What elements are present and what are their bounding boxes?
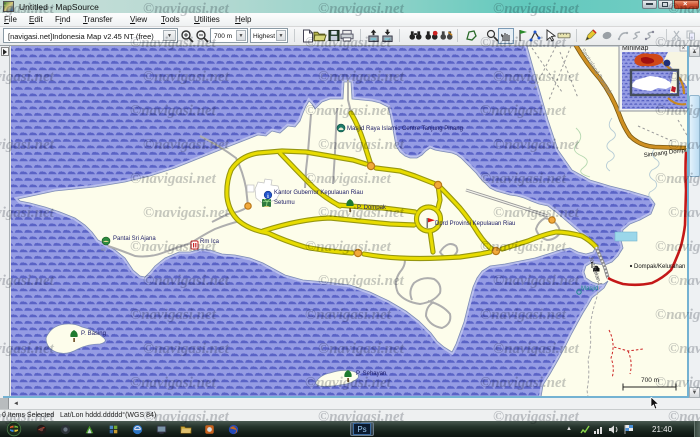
svg-text:Setumu: Setumu [274, 200, 295, 206]
svg-text:×: × [682, 46, 686, 52]
svg-text:MiniMap: MiniMap [622, 46, 649, 52]
svg-text:P. Basing: P. Basing [81, 331, 106, 337]
svg-text:P. Dompak: P. Dompak [357, 205, 387, 211]
svg-text:700 m: 700 m [641, 377, 659, 384]
svg-text:P. Sehayan: P. Sehayan [356, 371, 386, 377]
svg-text:Dompak/Kelurahan: Dompak/Kelurahan [634, 264, 685, 270]
svg-text:Dprd Provinsi Kepulauan Riau: Dprd Provinsi Kepulauan Riau [435, 221, 515, 227]
svg-text:Pantai Sri Ajana: Pantai Sri Ajana [113, 236, 156, 242]
svg-text:Masjid Raya Islamic Centre Tan: Masjid Raya Islamic Centre Tanjung Pinan… [347, 126, 463, 132]
svg-text:05: 05 [101, 247, 106, 252]
svg-text:Rm Ica: Rm Ica [200, 239, 220, 245]
svg-text:Masjid: Masjid [581, 286, 598, 292]
svg-text:Kantor Gubernur Kepulauan Riau: Kantor Gubernur Kepulauan Riau [274, 190, 363, 196]
